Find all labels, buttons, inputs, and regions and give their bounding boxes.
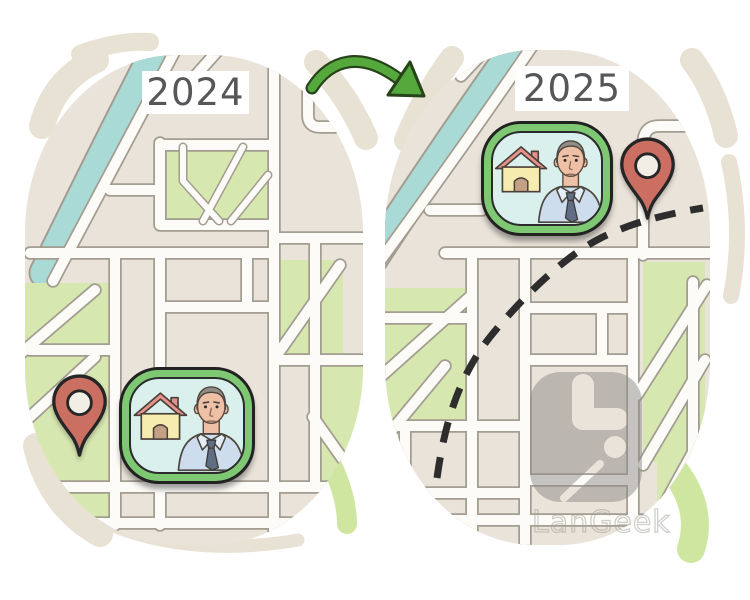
curved-arrow-icon bbox=[302, 48, 434, 110]
location-pin-icon bbox=[50, 373, 109, 461]
langeek-wordmark: LanGeek bbox=[532, 505, 671, 540]
langeek-logo-icon bbox=[530, 372, 642, 502]
langeek-watermark: LanGeek bbox=[522, 372, 672, 540]
year-label-2024: 2024 bbox=[142, 71, 249, 114]
home-marker-2024 bbox=[119, 367, 255, 484]
year-label-2025: 2025 bbox=[515, 66, 629, 111]
illustration-canvas: LanGeek 2024 2025 bbox=[0, 0, 750, 600]
location-pin-icon bbox=[618, 136, 677, 224]
home-marker-2025 bbox=[481, 121, 613, 236]
